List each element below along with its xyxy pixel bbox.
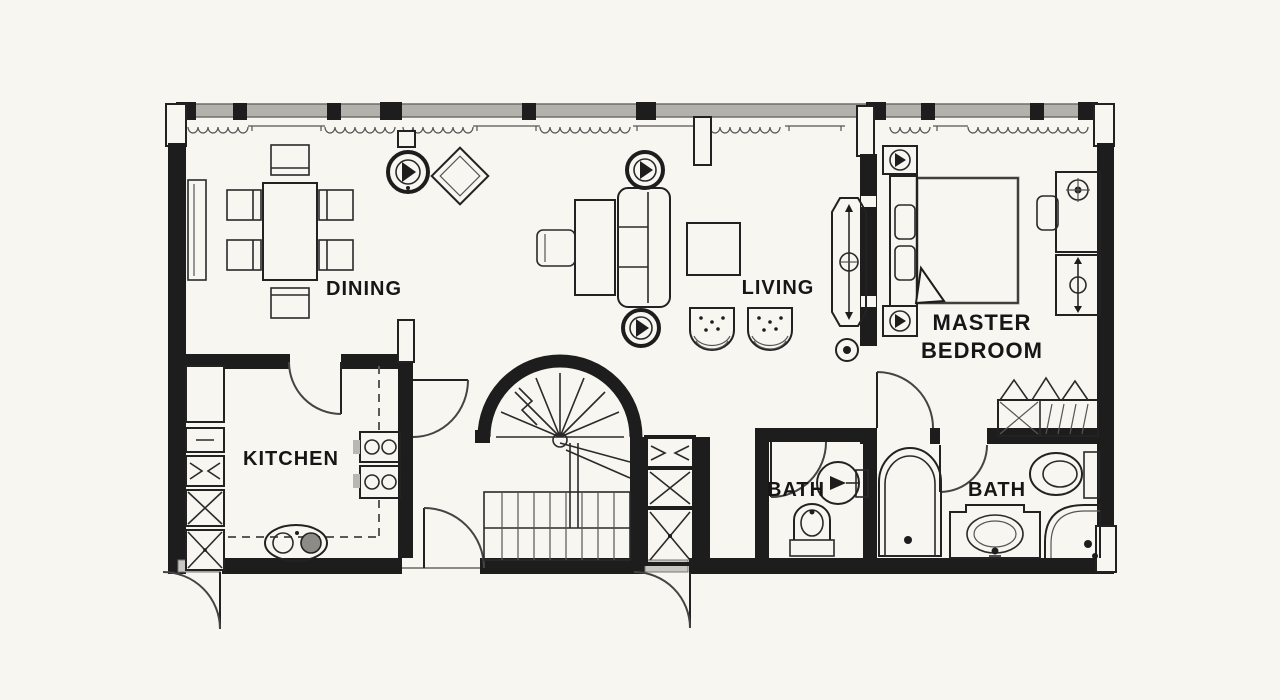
refrigerator xyxy=(186,366,224,422)
corner-column-left xyxy=(166,104,186,146)
handle xyxy=(353,440,360,454)
window-mullion xyxy=(857,106,874,156)
handle xyxy=(353,474,360,488)
kitchen-label: KITCHEN xyxy=(243,448,339,470)
window-mullion xyxy=(398,131,415,147)
living-room-label: LIVING xyxy=(742,277,815,299)
dining-room-label: DINING xyxy=(326,278,402,300)
cooktop xyxy=(353,432,400,498)
window-mullion xyxy=(694,117,711,165)
storage-cells xyxy=(186,366,224,570)
hall-column xyxy=(398,320,414,362)
bath-master-label: BATH xyxy=(968,479,1026,501)
master-bedroom-label-line2: BEDROOM xyxy=(921,338,1043,363)
floor-plan: DINING xyxy=(0,0,1280,700)
master-bedroom-label-line1: MASTER xyxy=(933,310,1032,335)
bath-small-label: BATH xyxy=(767,479,825,501)
wall-recess xyxy=(861,296,876,307)
corner-column-right xyxy=(1094,104,1114,146)
